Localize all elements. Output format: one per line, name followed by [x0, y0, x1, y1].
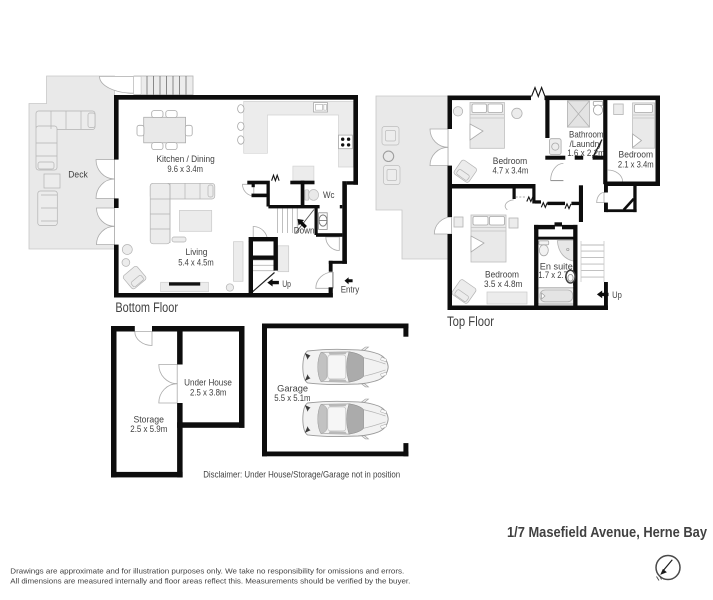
svg-text:Up: Up	[282, 279, 291, 290]
svg-text:Down: Down	[294, 226, 315, 237]
svg-text:Deck: Deck	[68, 170, 88, 181]
svg-text:2.5 x 5.9m: 2.5 x 5.9m	[130, 424, 167, 435]
svg-text:Top Floor: Top Floor	[447, 314, 494, 329]
svg-text:2.1 x 3.4m: 2.1 x 3.4m	[618, 159, 654, 170]
svg-text:3.5 x 4.8m: 3.5 x 4.8m	[484, 279, 522, 290]
svg-text:4.7 x 3.4m: 4.7 x 3.4m	[493, 165, 529, 176]
svg-text:Bottom Floor: Bottom Floor	[115, 300, 178, 315]
svg-text:Wc: Wc	[323, 190, 335, 201]
svg-text:9.6 x 3.4m: 9.6 x 3.4m	[167, 164, 203, 175]
svg-text:5.5 x 5.1m: 5.5 x 5.1m	[274, 393, 310, 404]
svg-text:Disclaimer: Under House/Storag: Disclaimer: Under House/Storage/Garage n…	[203, 470, 400, 481]
svg-text:1/7 Masefield Avenue, Herne Ba: 1/7 Masefield Avenue, Herne Bay	[507, 525, 707, 541]
svg-text:Up: Up	[612, 290, 622, 301]
svg-text:Living: Living	[186, 247, 208, 258]
svg-text:5.4 x 4.5m: 5.4 x 4.5m	[178, 257, 214, 268]
svg-text:Entry: Entry	[341, 285, 360, 296]
svg-text:2.5 x 3.8m: 2.5 x 3.8m	[190, 387, 227, 398]
svg-text:All dimensions are measured in: All dimensions are measured internally a…	[10, 576, 410, 585]
svg-text:Drawings are approximate and f: Drawings are approximate and for illustr…	[10, 566, 404, 575]
